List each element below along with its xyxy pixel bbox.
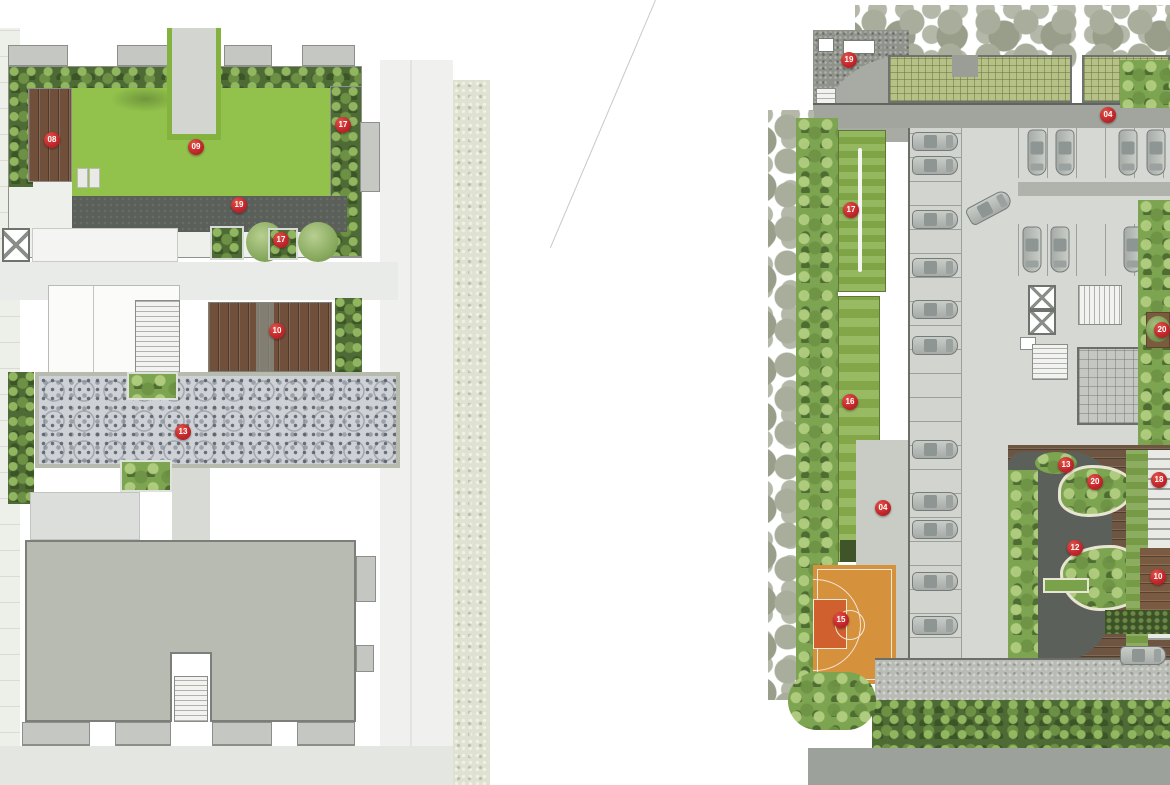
plan-marker-13: 13: [175, 424, 191, 440]
plan-marker-15: 15: [833, 612, 849, 628]
plan-marker-12: 12: [1067, 540, 1083, 556]
site-plan-canvas: 08091719171013190417160415201320181210: [0, 0, 1170, 785]
markers-layer: 08091719171013190417160415201320181210: [0, 0, 1170, 785]
plan-marker-10: 10: [269, 323, 285, 339]
plan-marker-13: 13: [1058, 457, 1074, 473]
plan-marker-17: 17: [843, 202, 859, 218]
plan-marker-09: 09: [188, 139, 204, 155]
plan-marker-08: 08: [44, 132, 60, 148]
plan-marker-19: 19: [841, 52, 857, 68]
plan-marker-04: 04: [875, 500, 891, 516]
plan-marker-20: 20: [1154, 322, 1170, 338]
plan-marker-16: 16: [842, 394, 858, 410]
plan-marker-19: 19: [231, 197, 247, 213]
plan-marker-20: 20: [1087, 474, 1103, 490]
plan-marker-17: 17: [273, 232, 289, 248]
plan-marker-04: 04: [1100, 107, 1116, 123]
plan-marker-10: 10: [1150, 569, 1166, 585]
plan-marker-17: 17: [335, 117, 351, 133]
plan-marker-18: 18: [1151, 472, 1167, 488]
